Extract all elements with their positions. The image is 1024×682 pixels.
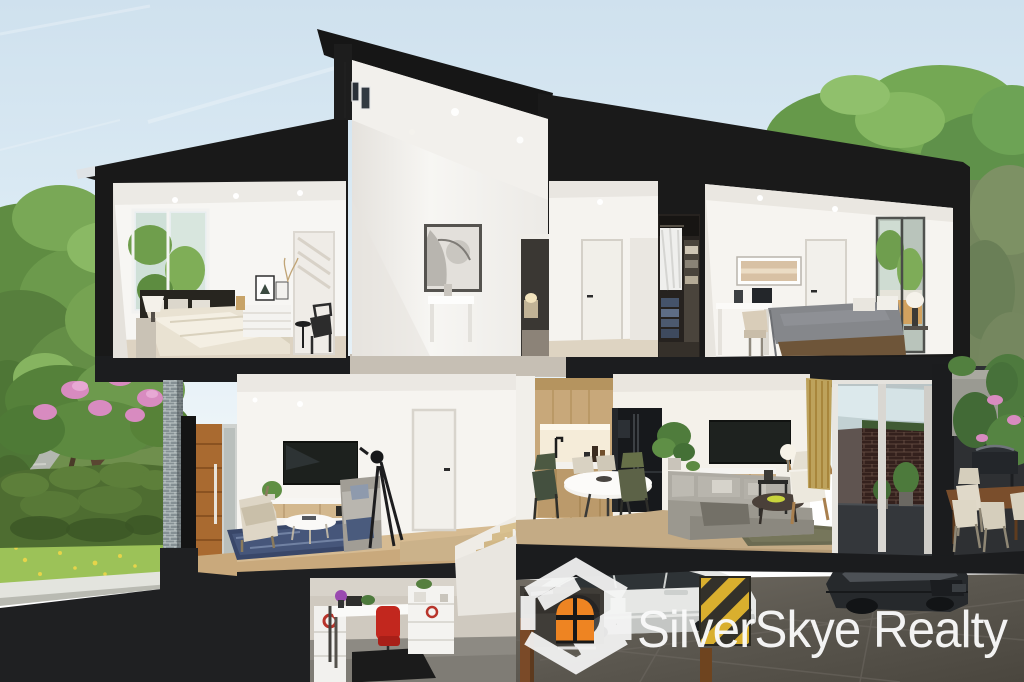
svg-text:SilverSkye Realty: SilverSkye Realty xyxy=(637,601,1008,659)
